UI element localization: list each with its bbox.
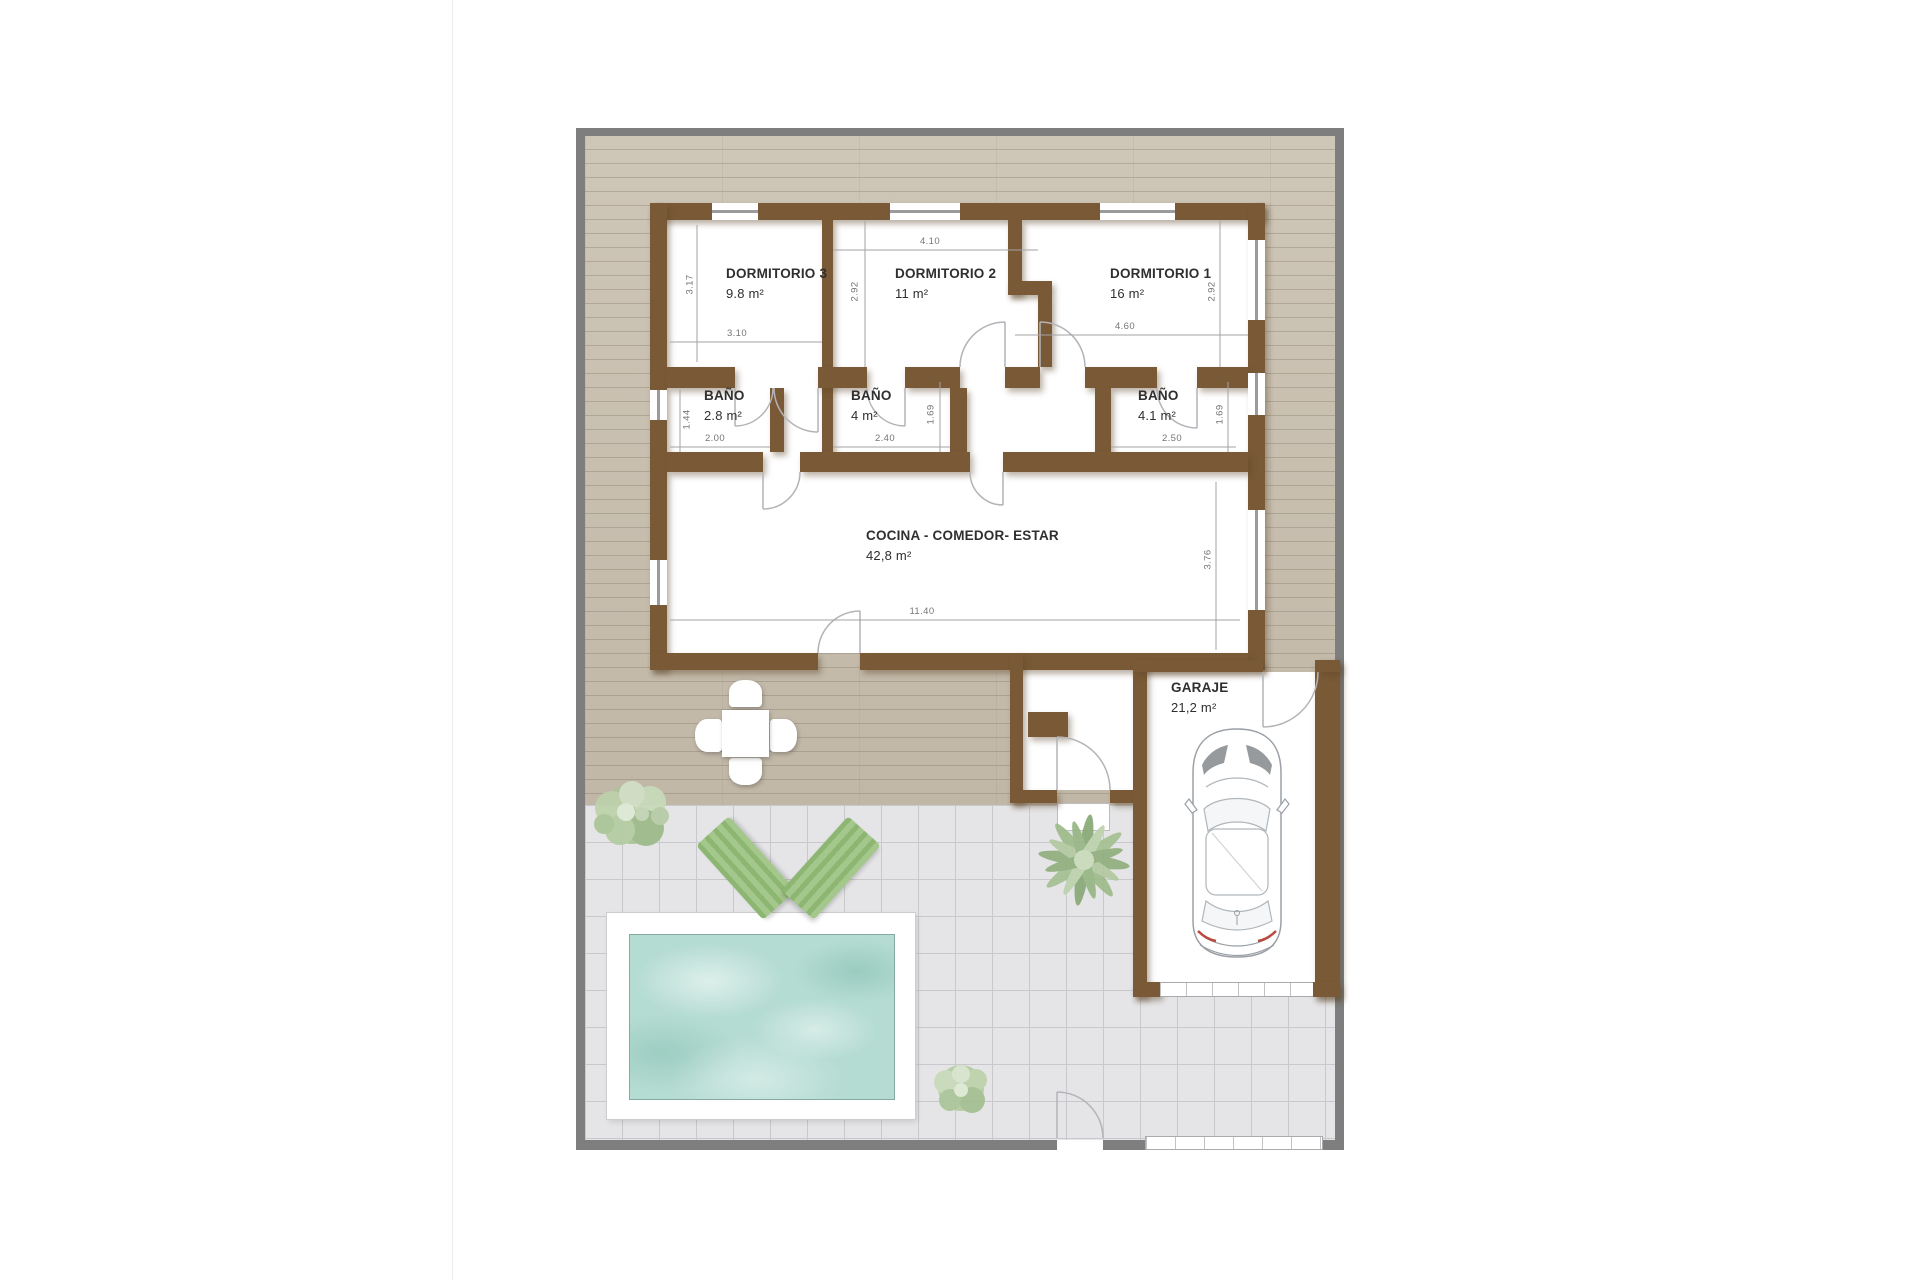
wall-segment — [1197, 367, 1248, 388]
room-label-bano-2: BAÑO 4 m² — [851, 386, 892, 426]
wall-segment — [800, 452, 970, 472]
dimension-label: 3.76 — [1203, 538, 1214, 582]
wall-segment — [1110, 790, 1133, 803]
dimension-label: 1.44 — [682, 398, 693, 442]
dimension-label: 4.60 — [1103, 321, 1147, 332]
wall-segment — [1315, 660, 1340, 997]
wall-segment — [1008, 281, 1052, 295]
dimension-label: 4.10 — [908, 236, 952, 247]
plot-wall-left — [576, 128, 585, 1150]
wall-segment — [1313, 982, 1340, 997]
dimension-label: 1.69 — [926, 393, 937, 437]
wall-segment — [1010, 653, 1023, 803]
dimension-label: 1.69 — [1215, 393, 1226, 437]
pedestrian-gate-opening — [1057, 1140, 1103, 1150]
wall-segment — [818, 367, 867, 388]
wall-segment — [1318, 660, 1340, 672]
plot-wall-top — [576, 128, 1344, 136]
room-label-bano-3: BAÑO 4.1 m² — [1138, 386, 1179, 426]
room-label-dormitorio-2: DORMITORIO 2 11 m² — [895, 264, 996, 304]
wall-segment — [1133, 660, 1263, 672]
wall-segment — [770, 388, 784, 452]
wall-segment — [667, 452, 763, 472]
wall-segment — [950, 388, 967, 452]
window — [712, 203, 758, 220]
window — [1248, 510, 1265, 610]
room-label-garaje: GARAJE 21,2 m² — [1171, 678, 1228, 718]
swimming-pool — [629, 934, 895, 1100]
wall-segment — [667, 367, 735, 388]
window — [1248, 373, 1265, 415]
floorplan-canvas: DORMITORIO 3 9.8 m² DORMITORIO 2 11 m² D… — [0, 0, 1920, 1280]
entry-step — [1057, 803, 1110, 831]
wall-segment — [1085, 367, 1157, 388]
page-divider-line — [452, 0, 453, 1280]
chair-icon — [770, 719, 797, 752]
window — [650, 560, 667, 605]
wall-segment — [1133, 982, 1160, 997]
wall-segment — [822, 220, 833, 452]
wall-segment — [905, 367, 960, 388]
wall-segment — [650, 653, 818, 670]
wall-segment — [1010, 790, 1057, 803]
dimension-label: 2.92 — [1207, 270, 1218, 314]
chair-icon — [695, 719, 722, 752]
room-label-bano-1: BAÑO 2.8 m² — [704, 386, 745, 426]
wall-segment — [1003, 452, 1248, 472]
dimension-label: 3.10 — [715, 328, 759, 339]
wall-segment — [1028, 712, 1068, 737]
chair-icon — [729, 758, 762, 785]
window — [1248, 240, 1265, 320]
wall-segment — [1038, 295, 1052, 367]
wall-segment — [1005, 367, 1040, 388]
dimension-label: 3.17 — [685, 263, 696, 307]
garage-vehicle-door — [1160, 982, 1313, 997]
wall-segment — [1133, 660, 1147, 997]
room-label-dormitorio-3: DORMITORIO 3 9.8 m² — [726, 264, 827, 304]
garage-interior — [1147, 672, 1315, 982]
room-label-cocina-comedor-estar: COCINA - COMEDOR- ESTAR 42,8 m² — [866, 526, 1059, 566]
dimension-label: 2.92 — [850, 270, 861, 314]
dimension-label: 2.40 — [863, 433, 907, 444]
window — [1100, 203, 1175, 220]
room-label-dormitorio-1: DORMITORIO 1 16 m² — [1110, 264, 1211, 304]
window — [650, 390, 667, 420]
dimension-label: 2.00 — [693, 433, 737, 444]
wall-segment — [1095, 388, 1111, 452]
dimension-label: 11.40 — [900, 606, 944, 617]
dimension-label: 2.50 — [1150, 433, 1194, 444]
window — [890, 203, 960, 220]
driveway-gate — [1145, 1136, 1323, 1150]
table-icon — [722, 710, 769, 757]
chair-icon — [729, 680, 762, 707]
